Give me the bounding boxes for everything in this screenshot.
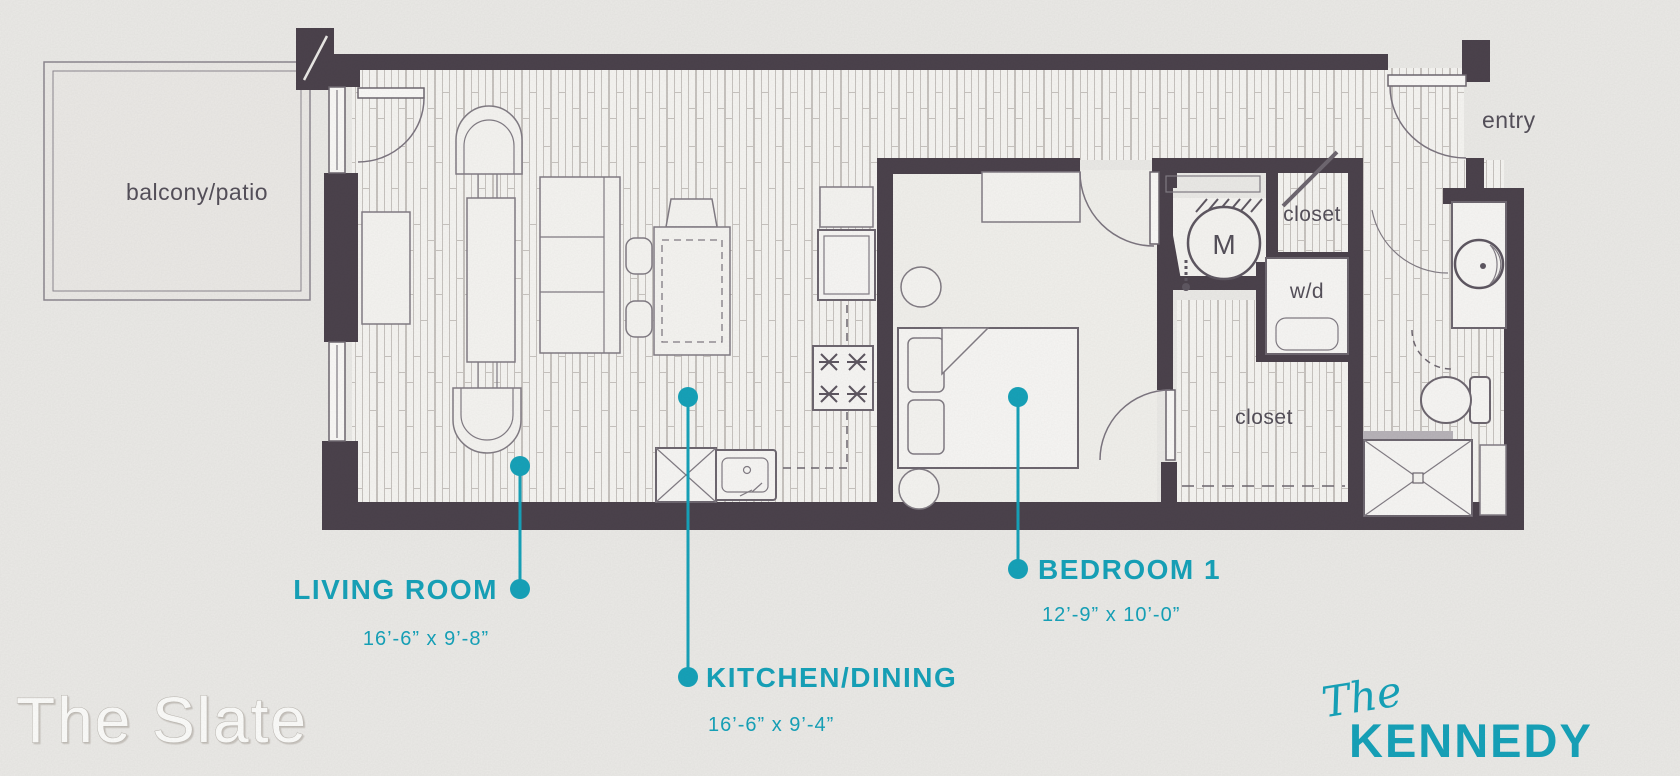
- floorplan-page: balcony/patio: [0, 0, 1680, 776]
- paper-grain: [0, 0, 1680, 776]
- floorplan-canvas: balcony/patio: [0, 0, 1680, 776]
